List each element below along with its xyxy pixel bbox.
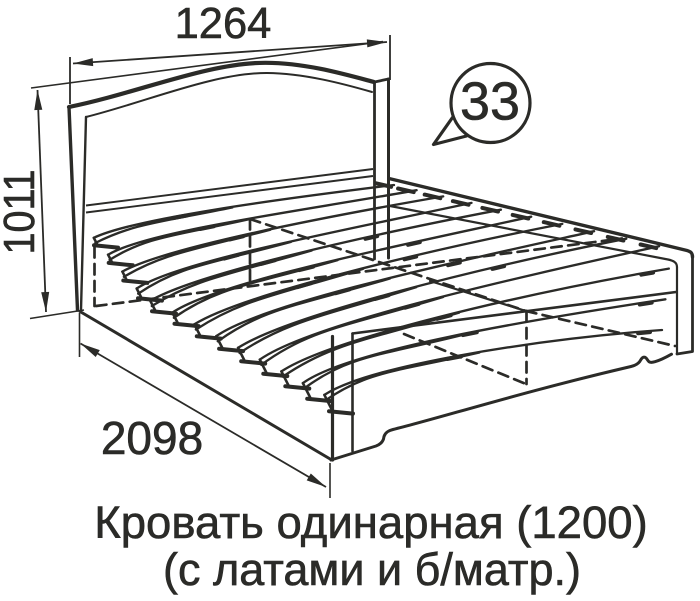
svg-text:2098: 2098 [101, 412, 203, 464]
svg-text:1264: 1264 [175, 0, 272, 48]
svg-text:33: 33 [460, 72, 520, 132]
svg-text:(с латами и б/матр.): (с латами и б/матр.) [163, 544, 581, 595]
svg-text:Кровать одинарная (1200): Кровать одинарная (1200) [94, 497, 648, 548]
svg-text:1011: 1011 [0, 169, 43, 254]
